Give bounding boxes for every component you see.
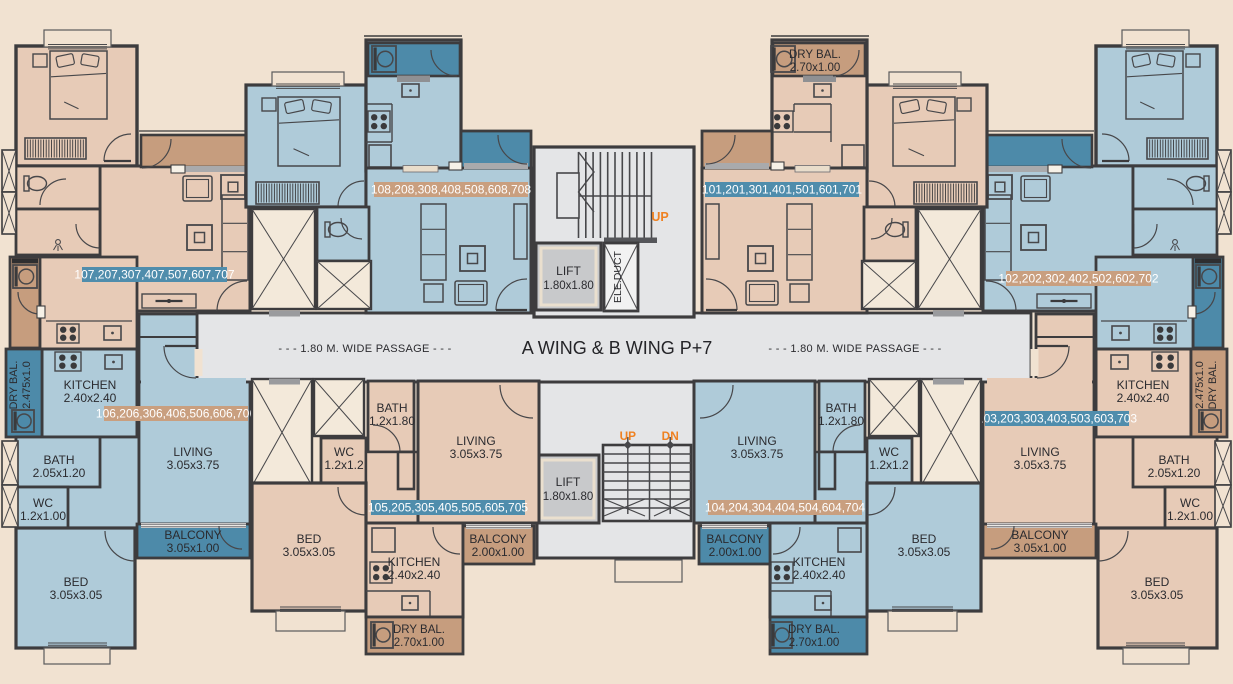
svg-text:DRY BAL.: DRY BAL.: [8, 361, 20, 410]
svg-text:BALCONY: BALCONY: [1011, 528, 1068, 542]
svg-text:106,206,306,406,506,606,706: 106,206,306,406,506,606,706: [96, 407, 256, 421]
svg-text:BED: BED: [297, 532, 322, 546]
svg-text:3.05x3.05: 3.05x3.05: [898, 545, 951, 559]
svg-text:- - - 1.80 M. WIDE PASSAGE - -: - - - 1.80 M. WIDE PASSAGE - - -: [278, 343, 451, 355]
svg-text:108,208,308,408,508,608,708: 108,208,308,408,508,608,708: [371, 183, 531, 197]
svg-text:3.05x3.75: 3.05x3.75: [1014, 458, 1067, 472]
svg-text:3.05x1.00: 3.05x1.00: [167, 541, 220, 555]
svg-text:WC: WC: [1180, 496, 1200, 510]
svg-text:DN: DN: [662, 429, 679, 443]
svg-text:BALCONY: BALCONY: [469, 532, 526, 546]
svg-text:3.05x3.05: 3.05x3.05: [283, 545, 336, 559]
svg-text:KITCHEN: KITCHEN: [793, 555, 846, 569]
svg-text:LIFT: LIFT: [556, 475, 581, 489]
svg-text:102,202,302,402,502,602,702: 102,202,302,402,502,602,702: [998, 272, 1158, 286]
svg-text:1.2x1.2: 1.2x1.2: [324, 458, 364, 472]
svg-text:BATH: BATH: [825, 401, 856, 415]
svg-text:3.05x3.75: 3.05x3.75: [167, 458, 220, 472]
svg-text:KITCHEN: KITCHEN: [1117, 378, 1170, 392]
svg-text:KITCHEN: KITCHEN: [64, 378, 117, 392]
svg-text:BED: BED: [912, 532, 937, 546]
svg-text:LIVING: LIVING: [456, 434, 495, 448]
svg-text:2.40x2.40: 2.40x2.40: [64, 391, 117, 405]
svg-text:3.05x1.00: 3.05x1.00: [1014, 541, 1067, 555]
svg-text:UP: UP: [620, 429, 637, 443]
svg-text:2.70x1.00: 2.70x1.00: [394, 637, 445, 649]
svg-text:2.05x1.20: 2.05x1.20: [1148, 466, 1201, 480]
svg-text:2.40x2.40: 2.40x2.40: [1117, 391, 1170, 405]
svg-text:2.00x1.00: 2.00x1.00: [472, 545, 525, 559]
svg-text:2.00x1.00: 2.00x1.00: [709, 545, 762, 559]
svg-text:1.2x1.00: 1.2x1.00: [20, 509, 66, 523]
svg-text:101,201,301,401,501,601,701: 101,201,301,401,501,601,701: [702, 183, 862, 197]
svg-text:1.2x1.80: 1.2x1.80: [818, 414, 864, 428]
svg-text:2.475x1.0: 2.475x1.0: [21, 361, 33, 408]
svg-text:BED: BED: [1145, 575, 1170, 589]
svg-text:DRY BAL.: DRY BAL.: [1207, 361, 1219, 410]
svg-text:DRY BAL.: DRY BAL.: [393, 624, 445, 636]
svg-text:1.80x1.80: 1.80x1.80: [543, 491, 594, 503]
svg-text:2.70x1.00: 2.70x1.00: [790, 62, 841, 74]
svg-text:BALCONY: BALCONY: [706, 532, 763, 546]
svg-text:BED: BED: [64, 575, 89, 589]
svg-text:1.2x1.2: 1.2x1.2: [869, 458, 909, 472]
svg-text:3.05x3.05: 3.05x3.05: [1131, 588, 1184, 602]
svg-text:BATH: BATH: [1158, 453, 1189, 467]
svg-text:- - - 1.80 M. WIDE PASSAGE - -: - - - 1.80 M. WIDE PASSAGE - - -: [768, 343, 941, 355]
svg-text:1.2x1.80: 1.2x1.80: [369, 414, 415, 428]
svg-text:WC: WC: [879, 445, 899, 459]
svg-text:DRY BAL.: DRY BAL.: [789, 49, 841, 61]
svg-text:2.40x2.40: 2.40x2.40: [793, 568, 846, 582]
svg-text:BATH: BATH: [43, 453, 74, 467]
svg-text:ELE.DUCT: ELE.DUCT: [612, 250, 624, 303]
svg-text:3.05x3.75: 3.05x3.75: [450, 447, 503, 461]
svg-text:BALCONY: BALCONY: [164, 528, 221, 542]
svg-text:BATH: BATH: [376, 401, 407, 415]
svg-text:WC: WC: [334, 445, 354, 459]
svg-text:DRY BAL.: DRY BAL.: [788, 624, 840, 636]
svg-text:3.05x3.05: 3.05x3.05: [50, 588, 103, 602]
svg-text:LIFT: LIFT: [556, 264, 581, 278]
svg-text:A WING & B WING P+7: A WING & B WING P+7: [522, 338, 713, 358]
svg-text:2.05x1.20: 2.05x1.20: [33, 466, 86, 480]
svg-text:107,207,307,407,507,607,707: 107,207,307,407,507,607,707: [74, 268, 234, 282]
svg-text:3.05x3.75: 3.05x3.75: [731, 447, 784, 461]
svg-text:WC: WC: [33, 496, 53, 510]
svg-text:1.2x1.00: 1.2x1.00: [1167, 509, 1213, 523]
svg-text:KITCHEN: KITCHEN: [388, 555, 441, 569]
svg-text:104,204,304,404,504,604,704: 104,204,304,404,504,604,704: [705, 501, 865, 515]
svg-text:LIVING: LIVING: [173, 445, 212, 459]
svg-text:2.475x1.0: 2.475x1.0: [1194, 361, 1206, 408]
svg-text:UP: UP: [651, 210, 668, 224]
svg-text:105,205,305,405,505,605,705: 105,205,305,405,505,605,705: [368, 501, 528, 515]
svg-text:1.80x1.80: 1.80x1.80: [543, 280, 594, 292]
svg-text:LIVING: LIVING: [1020, 445, 1059, 459]
svg-text:LIVING: LIVING: [737, 434, 776, 448]
svg-text:103,203,303,403,503,603,703: 103,203,303,403,503,603,703: [977, 412, 1137, 426]
svg-text:2.40x2.40: 2.40x2.40: [388, 568, 441, 582]
svg-text:2.70x1.00: 2.70x1.00: [789, 637, 840, 649]
